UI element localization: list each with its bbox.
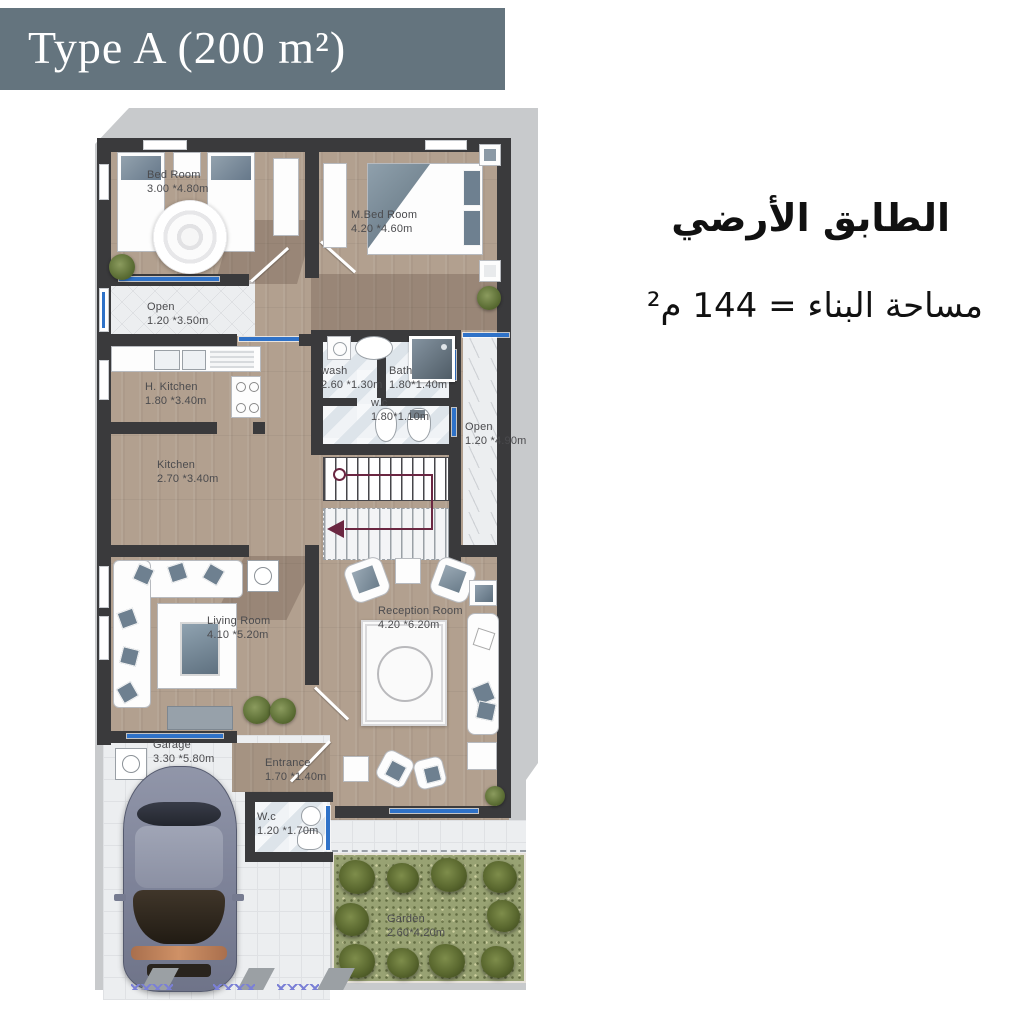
window	[143, 140, 187, 150]
plant	[477, 286, 501, 310]
ceiling-symbol	[247, 560, 279, 592]
stair-route	[431, 474, 433, 530]
wall-right	[497, 138, 511, 818]
room-dims: 4.20 *4.60m	[351, 222, 417, 236]
plant	[243, 696, 271, 724]
bush	[387, 948, 419, 978]
plant	[270, 698, 296, 724]
stair-route	[341, 474, 433, 476]
window	[99, 164, 109, 200]
window	[99, 360, 109, 400]
car-rear-window	[137, 802, 221, 826]
room-dims: 1.70 *1.40m	[265, 770, 327, 784]
room-dims: 3.30 *5.80m	[153, 752, 215, 766]
bush	[339, 860, 375, 894]
bush	[431, 858, 467, 892]
door-glass	[239, 337, 299, 341]
stair-direction-arrow	[327, 520, 344, 538]
stove	[231, 376, 261, 418]
plant	[485, 786, 505, 806]
window-glass	[102, 292, 105, 328]
room-name: w.c	[371, 396, 429, 410]
room-label-hkitchen: H. Kitchen 1.80 *3.40m	[145, 380, 207, 409]
side-table	[395, 558, 421, 584]
stair-route-start	[333, 468, 346, 481]
room-dims: 2.60*4.20m	[387, 926, 445, 940]
room-label-bath: Bath 1.80*1.40m	[389, 364, 447, 393]
room-name: Entrance	[265, 756, 327, 770]
window	[99, 566, 109, 608]
bush	[387, 863, 419, 893]
room-dims: 1.20 *4.90m	[465, 434, 527, 448]
floor-name-arabic: الطابق الأرضي	[671, 196, 950, 240]
wall-living-north	[97, 545, 249, 557]
door-glass	[452, 408, 456, 436]
tv-cabinet	[167, 706, 233, 730]
car-mirror	[114, 894, 126, 901]
room-name: Reception Room	[378, 604, 463, 618]
title-bar: Type A (200 m²)	[0, 8, 505, 90]
room-label-master-bedroom: M.Bed Room 4.20 *4.60m	[351, 208, 417, 237]
room-name: H. Kitchen	[145, 380, 207, 394]
room-label-garage: Garage 3.30 *5.80m	[153, 738, 215, 767]
wall-stairs-north	[311, 444, 461, 455]
room-dims: 2.60 *1.30m	[321, 378, 383, 392]
plot-dashed-line	[332, 850, 526, 852]
room-label-wash: wash 2.60 *1.30m	[321, 364, 383, 393]
room-name: Bed Room	[147, 168, 209, 182]
room-dims: 1.80*1.40m	[389, 378, 447, 392]
wall-wc-south	[245, 852, 333, 862]
room-name: W.c	[257, 810, 319, 824]
room-name: Garden	[387, 912, 445, 926]
car-mirror	[232, 894, 244, 901]
built-area-arabic: مساحة البناء = 144 م²	[647, 286, 983, 326]
room-dims: 2.70 *3.40m	[157, 472, 219, 486]
sink	[355, 336, 393, 360]
room-dims: 4.20 *6.20m	[378, 618, 463, 632]
water-mark	[213, 984, 255, 990]
stair-route	[345, 528, 433, 530]
round-rug	[153, 200, 227, 274]
wardrobe	[323, 163, 347, 248]
wall-wc-divider	[323, 398, 357, 406]
room-name: Garage	[153, 738, 215, 752]
room-dims: 1.20 *1.70m	[257, 824, 319, 838]
room-dims: 1.20 *3.50m	[147, 314, 209, 328]
room-name: Living Room	[207, 614, 270, 628]
nightstand	[479, 144, 501, 166]
water-mark	[277, 984, 319, 990]
side-table	[343, 756, 369, 782]
bush	[335, 903, 369, 936]
wall-stub	[253, 422, 265, 434]
side-table	[467, 742, 497, 770]
floor-plan: Bed Room 3.00 *4.80m M.Bed Room 4.20 *4.…	[95, 108, 540, 1003]
room-name: Kitchen	[157, 458, 219, 472]
wall-bedroom-divider	[305, 138, 319, 278]
nightstand	[479, 260, 501, 282]
wall-wc-north	[245, 792, 333, 802]
window-glass	[119, 277, 219, 281]
water-mark	[131, 984, 173, 990]
car	[123, 766, 235, 990]
room-label-kitchen: Kitchen 2.70 *3.40m	[157, 458, 219, 487]
pillow	[463, 170, 481, 206]
side-table	[469, 580, 497, 606]
sofa	[467, 613, 499, 735]
door-glass	[326, 806, 330, 850]
room-dims: 4.10 *5.20m	[207, 628, 270, 642]
room-label-wc: W.c 1.20 *1.70m	[257, 810, 319, 839]
room-label-garden: Garden 2.60*4.20m	[387, 912, 445, 941]
bush	[429, 944, 465, 978]
bush	[487, 900, 520, 932]
wall-stub	[299, 334, 311, 346]
window	[99, 616, 109, 660]
wardrobe	[273, 158, 299, 236]
reception-rug	[361, 620, 447, 726]
room-label-reception: Reception Room 4.20 *6.20m	[378, 604, 463, 633]
room-label-wc-small: w.c 1.80*1.10m	[371, 396, 429, 425]
wall-hkitchen-north	[97, 334, 237, 346]
room-label-living: Living Room 4.10 *5.20m	[207, 614, 270, 643]
bush	[483, 861, 517, 893]
room-label-open-top: Open 1.20 *3.50m	[147, 300, 209, 329]
room-dims: 1.80 *3.40m	[145, 394, 207, 408]
wall-living-reception-divider	[305, 545, 319, 685]
kitchen-counter	[111, 346, 261, 372]
plant	[109, 254, 135, 280]
wall-hkitchen-south	[97, 422, 217, 434]
room-dims: 3.00 *4.80m	[147, 182, 209, 196]
washing-machine	[327, 336, 351, 360]
pillow	[463, 210, 481, 246]
room-name: Bath	[389, 364, 447, 378]
page-title: Type A (200 m²)	[28, 8, 346, 88]
room-label-entrance: Entrance 1.70 *1.40m	[265, 756, 327, 785]
room-name: Open	[147, 300, 209, 314]
window	[425, 140, 467, 150]
window-glass	[390, 809, 478, 813]
room-name: wash	[321, 364, 383, 378]
car-hood-stripe	[131, 946, 227, 960]
room-name: Open	[465, 420, 527, 434]
room-dims: 1.80*1.10m	[371, 410, 429, 424]
room-label-open-right: Open 1.20 *4.90m	[465, 420, 527, 449]
door-glass	[463, 333, 509, 337]
room-name: M.Bed Room	[351, 208, 417, 222]
car-roof	[135, 826, 223, 888]
room-label-bedroom: Bed Room 3.00 *4.80m	[147, 168, 209, 197]
bush	[481, 946, 514, 978]
